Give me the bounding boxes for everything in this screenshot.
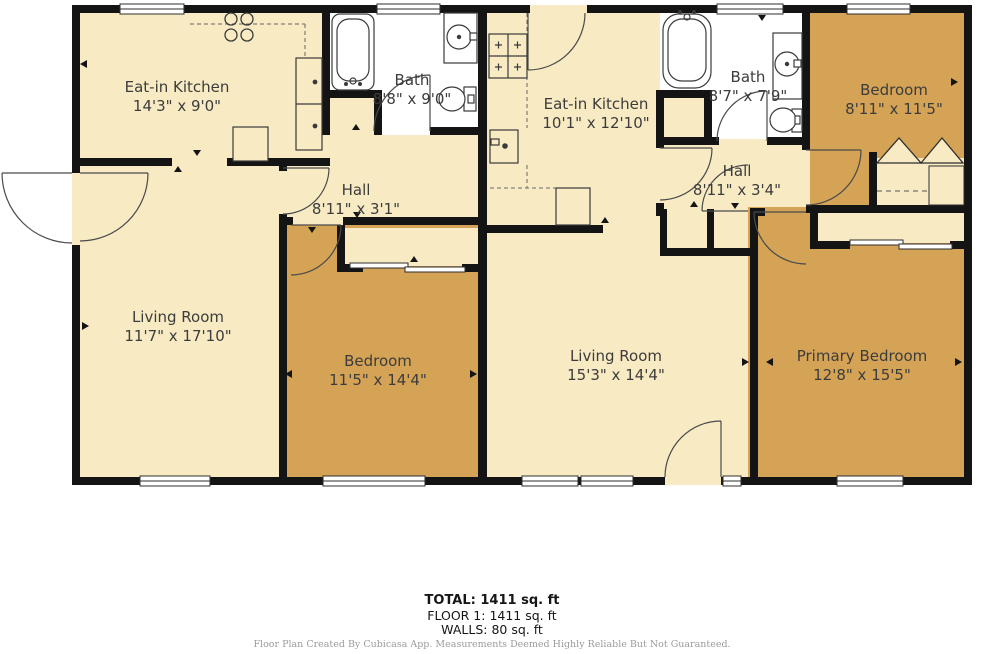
room-name: Bath [709,68,788,87]
room-label-eat-in-kitchen-right: Eat-in Kitchen 10'1" x 12'10" [542,95,649,133]
room-name: Primary Bedroom [797,347,928,366]
cabinet-icon-left [233,127,268,161]
window-living-right-bottom-2 [581,476,633,486]
total-area: TOTAL: 1411 sq. ft [0,594,984,609]
room-label-bath-right: Bath 8'7" x 7'9" [709,68,788,106]
room-name: Living Room [124,308,231,327]
floor1-area: FLOOR 1: 1411 sq. ft [0,609,984,624]
disclaimer-text: Floor Plan Created By Cubicasa App. Meas… [0,639,984,650]
window-bath-right-top [717,4,783,14]
room-label-living-room-right: Living Room 15'3" x 14'4" [567,347,665,385]
room-dims: 15'3" x 14'4" [567,366,665,385]
room-name: Eat-in Kitchen [125,78,230,97]
room-dims: 8'11" x 3'4" [693,181,781,200]
room-dims: 11'7" x 17'10" [124,327,231,346]
room-label-living-room-left: Living Room 11'7" x 17'10" [124,308,231,346]
room-label-bedroom-left: Bedroom 11'5" x 14'4" [329,352,427,390]
window-kitchen-left-top [120,4,184,14]
pantry-cabinet-icon [296,58,322,150]
window-bedroom-right-top [847,4,910,14]
room-label-hall-right: Hall 8'11" x 3'4" [693,162,781,200]
room-label-primary-bedroom: Primary Bedroom 12'8" x 15'5" [797,347,928,385]
room-dims: 11'5" x 14'4" [329,371,427,390]
room-label-eat-in-kitchen-left: Eat-in Kitchen 14'3" x 9'0" [125,78,230,116]
room-name: Living Room [567,347,665,366]
floorplan-canvas: Eat-in Kitchen 14'3" x 9'0" Bath 8'8" x … [0,0,984,654]
room-label-bedroom-right: Bedroom 8'11" x 11'5" [845,81,943,119]
window-back-door-sidelite [723,476,741,486]
bathtub-icon-left [332,14,374,90]
window-bedroom-left-bottom [323,476,425,486]
room-dims: 8'8" x 9'0" [373,90,452,109]
room-dims: 8'11" x 11'5" [845,100,943,119]
window-bath-left-top [377,4,440,14]
room-name: Hall [312,181,400,200]
room-name: Eat-in Kitchen [542,95,649,114]
walls-area: WALLS: 80 sq. ft [0,623,984,638]
room-dims: 8'7" x 7'9" [709,87,788,106]
sink-cabinet-icon-right [490,130,518,163]
room-dims: 14'3" x 9'0" [125,97,230,116]
room-dims: 8'11" x 3'1" [312,200,400,219]
room-name: Bedroom [329,352,427,371]
room-name: Bedroom [845,81,943,100]
room-name: Hall [693,162,781,181]
window-living-right-bottom-1 [522,476,578,486]
room-dims: 10'1" x 12'10" [542,114,649,133]
room-dims: 12'8" x 15'5" [797,366,928,385]
room-label-bath-left: Bath 8'8" x 9'0" [373,71,452,109]
area-summary: TOTAL: 1411 sq. ft FLOOR 1: 1411 sq. ft … [0,594,984,638]
room-name: Bath [373,71,452,90]
dishwasher-icon-right [556,188,590,225]
sink-icon-left [444,13,477,63]
bathtub-icon-right [663,11,711,88]
window-primary-bottom [837,476,903,486]
room-label-hall-left: Hall 8'11" x 3'1" [312,181,400,219]
toilet-icon-right [770,108,802,132]
window-living-left-bottom [140,476,210,486]
